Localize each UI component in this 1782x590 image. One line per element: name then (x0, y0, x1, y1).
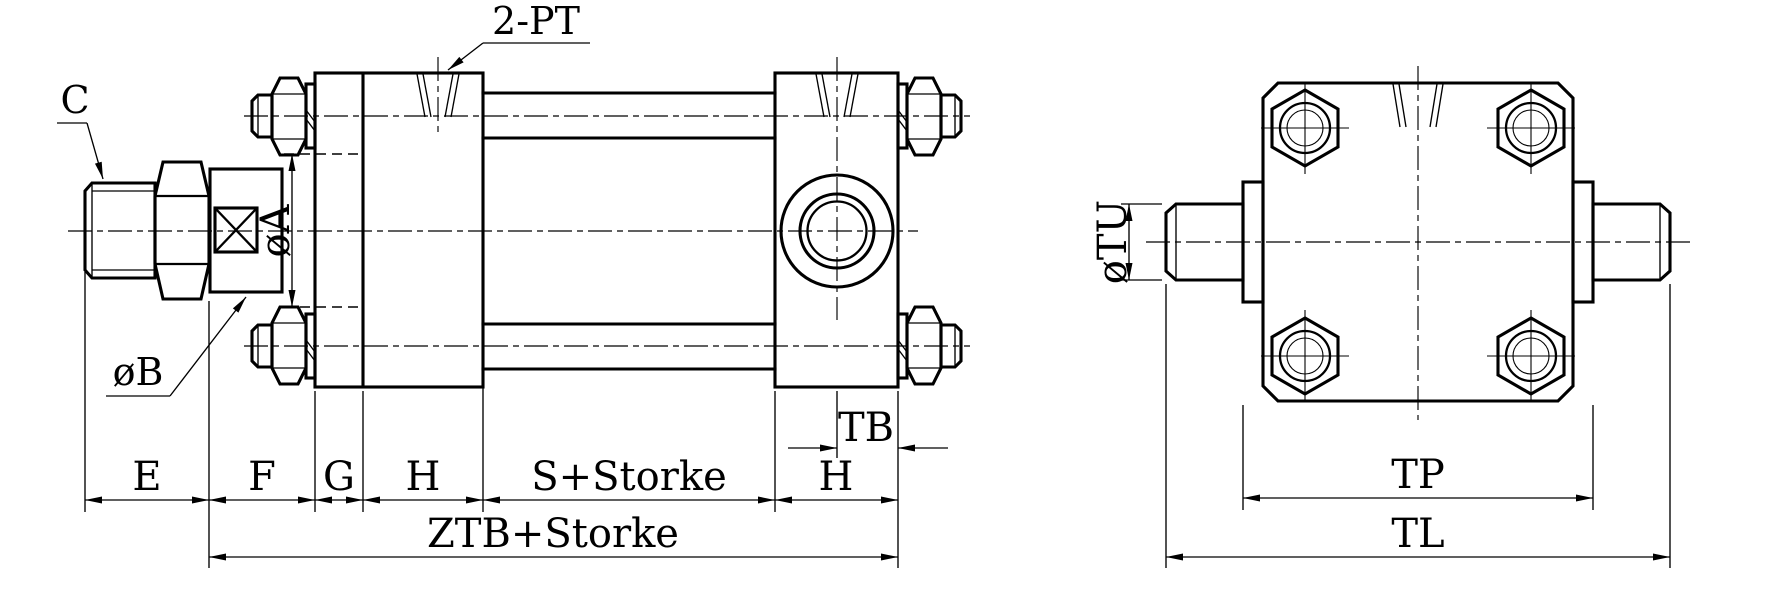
dimension-lines: E F G H S+Storke H TB ZTB+Storke (85, 154, 1670, 557)
dimension-h-head: H (363, 454, 483, 500)
side-view (85, 73, 961, 387)
centerlines (68, 57, 1692, 420)
dimension-h-cap: H (775, 454, 898, 500)
dimension-oa: øA (253, 154, 299, 307)
corner-nut-top-left (1261, 82, 1349, 174)
dim-e-label: E (132, 454, 161, 500)
callout-oa-label: øA (253, 203, 299, 257)
dimension-tl: TL (1166, 511, 1670, 557)
leader-callouts: C øB 2-PT (57, 0, 590, 396)
dim-ztb-stroke-label: ZTB+Storke (427, 511, 679, 557)
dim-f-label: F (248, 454, 276, 500)
callout-ob: øB (106, 297, 246, 396)
callout-ob-label: øB (113, 350, 164, 394)
dimension-e: E (85, 454, 209, 500)
cylinder-outline-drawing: E F G H S+Storke H TB ZTB+Storke (0, 0, 1782, 590)
corner-nut-bottom-left (1261, 310, 1349, 402)
dimension-tp: TP (1243, 452, 1593, 498)
dimension-tb: TB (788, 405, 948, 451)
callout-2pt: 2-PT (448, 0, 590, 70)
dimension-g: G (315, 454, 363, 500)
dim-h-head-label: H (406, 454, 441, 500)
dim-tl-label: TL (1391, 511, 1444, 557)
dim-h-cap-label: H (819, 454, 854, 500)
corner-nut-bottom-right (1487, 310, 1575, 402)
dimension-ztb-stroke: ZTB+Storke (209, 511, 898, 557)
callout-c-label: C (60, 78, 89, 122)
callout-otu-label: øTU (1090, 200, 1136, 284)
dim-tb-label: TB (838, 405, 894, 451)
dim-g-label: G (323, 454, 355, 500)
callout-c: C (57, 78, 103, 179)
corner-nut-top-right (1487, 82, 1575, 174)
dimension-f: F (209, 454, 315, 500)
dimension-otu: øTU (1090, 200, 1136, 284)
dim-tp-label: TP (1391, 452, 1445, 498)
dimension-s-stroke: S+Storke (483, 454, 775, 500)
callout-2pt-label: 2-PT (492, 0, 580, 43)
dim-s-stroke-label: S+Storke (531, 454, 727, 500)
technical-drawing-page: E F G H S+Storke H TB ZTB+Storke (0, 0, 1782, 590)
